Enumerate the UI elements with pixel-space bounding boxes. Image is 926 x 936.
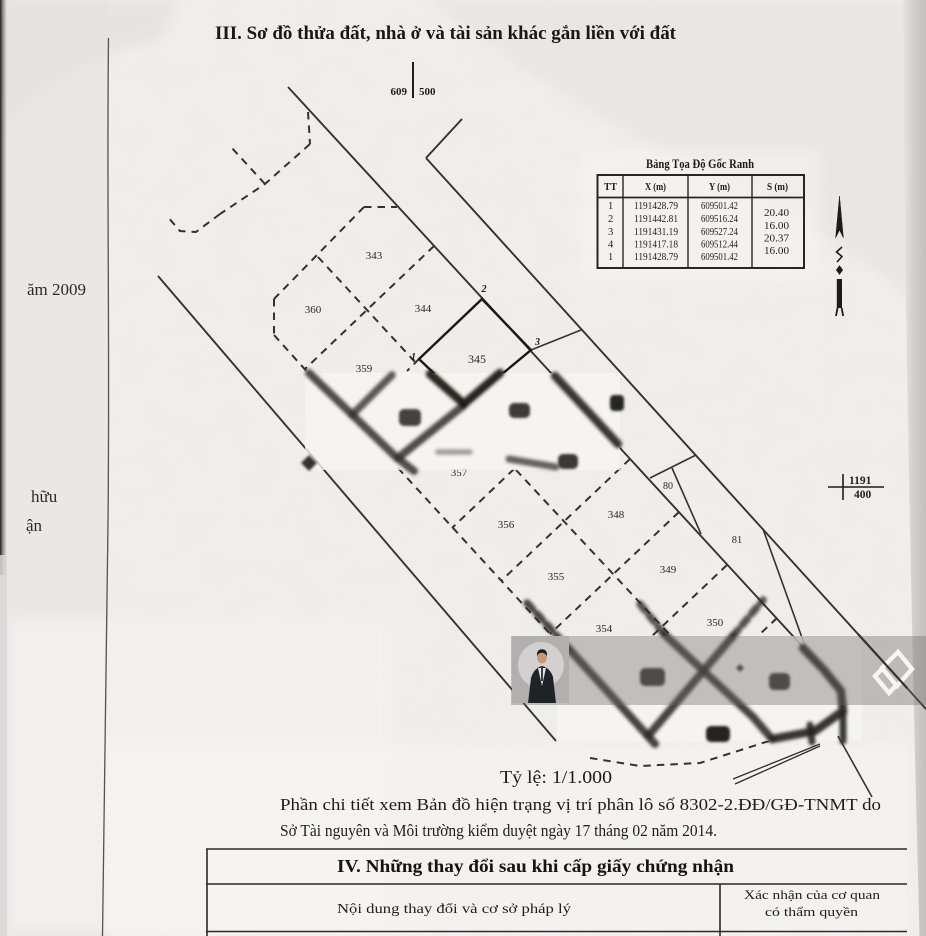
svg-text:609527.24: 609527.24 — [701, 227, 739, 238]
svg-text:Xác nhận của cơ quan: Xác nhận của cơ quan — [744, 887, 881, 902]
svg-text:20.40: 20.40 — [764, 208, 789, 219]
svg-text:1191431.19: 1191431.19 — [634, 227, 678, 238]
svg-text:345: 345 — [468, 352, 486, 366]
svg-text:343: 343 — [366, 250, 383, 262]
svg-text:1191428.79: 1191428.79 — [634, 201, 678, 212]
svg-text:360: 360 — [305, 304, 322, 316]
svg-text:2: 2 — [481, 284, 487, 295]
svg-text:1191: 1191 — [849, 475, 872, 487]
svg-text:có thẩm quyền: có thẩm quyền — [765, 904, 859, 919]
svg-text:354: 354 — [596, 623, 613, 635]
svg-text:Bảng Tọa Độ Gốc Ranh: Bảng Tọa Độ Gốc Ranh — [646, 157, 754, 171]
svg-text:609501.42: 609501.42 — [701, 252, 738, 263]
svg-text:348: 348 — [608, 509, 625, 521]
svg-text:X (m): X (m) — [645, 182, 666, 193]
svg-text:Sở Tài nguyên và Môi trường ki: Sở Tài nguyên và Môi trường kiểm duyệt n… — [280, 821, 717, 840]
svg-text:IV. Những thay đổi sau khi cấp: IV. Những thay đổi sau khi cấp giấy chứn… — [337, 856, 734, 876]
svg-text:609: 609 — [391, 86, 408, 98]
svg-text:Tỷ lệ: 1/1.000: Tỷ lệ: 1/1.000 — [500, 767, 612, 787]
svg-text:1191442.81: 1191442.81 — [634, 214, 678, 225]
svg-text:ăm 2009: ăm 2009 — [27, 280, 86, 299]
svg-text:2: 2 — [608, 214, 613, 225]
svg-text:3: 3 — [534, 337, 540, 348]
svg-text:4: 4 — [608, 240, 614, 251]
svg-text:350: 350 — [707, 617, 724, 629]
svg-text:1: 1 — [608, 201, 613, 212]
svg-text:400: 400 — [854, 489, 872, 501]
svg-text:609512.44: 609512.44 — [701, 240, 739, 251]
svg-text:609516.24: 609516.24 — [701, 214, 739, 225]
svg-text:Y (m): Y (m) — [709, 182, 730, 193]
svg-text:609501.42: 609501.42 — [701, 201, 738, 212]
svg-text:356: 356 — [498, 519, 515, 531]
svg-text:355: 355 — [548, 571, 565, 583]
svg-text:TT: TT — [604, 182, 617, 193]
svg-text:Nội dung thay đổi và cơ sở phá: Nội dung thay đổi và cơ sở pháp lý — [337, 901, 571, 916]
svg-text:4: 4 — [615, 400, 621, 411]
svg-text:81: 81 — [732, 535, 743, 546]
svg-text:S (m): S (m) — [767, 182, 788, 193]
svg-text:16.00: 16.00 — [764, 221, 789, 232]
svg-text:ận: ận — [26, 516, 43, 535]
svg-text:16.00: 16.00 — [764, 246, 789, 257]
svg-text:1: 1 — [411, 352, 416, 363]
svg-text:344: 344 — [415, 303, 432, 315]
svg-text:III. Sơ đồ thửa đất, nhà ở và: III. Sơ đồ thửa đất, nhà ở và tài sản kh… — [215, 23, 677, 44]
svg-text:1: 1 — [608, 252, 613, 263]
svg-text:hữu: hữu — [31, 487, 58, 506]
svg-text:1191417.18: 1191417.18 — [634, 240, 678, 251]
svg-text:Phần chi tiết xem Bản đồ hiện: Phần chi tiết xem Bản đồ hiện trạng vị t… — [280, 795, 881, 814]
svg-text:1191428.79: 1191428.79 — [634, 252, 678, 263]
svg-text:500: 500 — [419, 86, 436, 98]
svg-text:20.37: 20.37 — [764, 234, 789, 245]
svg-text:3: 3 — [608, 227, 613, 238]
svg-text:80: 80 — [663, 481, 673, 492]
svg-text:349: 349 — [660, 564, 677, 576]
